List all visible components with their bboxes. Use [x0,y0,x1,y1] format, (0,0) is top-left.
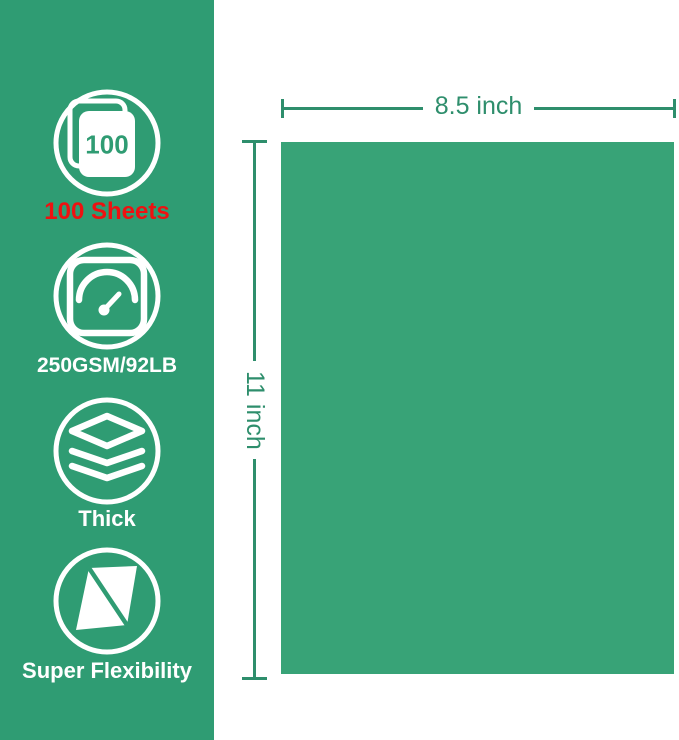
layers-icon [52,396,162,506]
gauge-icon [52,241,162,351]
dimension-line-bottom-segment [253,459,256,677]
sheets-stack-icon: 100 [52,88,162,198]
flex-sheet-icon [52,546,162,656]
feature-flexibility: Super Flexibility [0,546,214,684]
dimension-line-right-segment [534,107,673,110]
feature-sheet-count: 100 100 Sheets [0,88,214,225]
feature-banner: 100 100 Sheets 250GSM/92LB Thick [0,0,214,740]
feature-label-thickness: Thick [78,506,135,532]
feature-thickness: Thick [0,396,214,532]
height-dimension: 11 inch [242,140,267,680]
width-dimension: 8.5 inch [281,99,676,118]
height-dimension-label: 11 inch [240,371,269,450]
feature-label-weight: 250GSM/92LB [37,353,177,379]
feature-weight: 250GSM/92LB [0,241,214,379]
width-dimension-label: 8.5 inch [435,97,523,116]
dimension-tick-right [673,99,676,118]
product-infographic: 100 100 Sheets 250GSM/92LB Thick [0,0,679,740]
sheet-count-badge: 100 [85,130,128,160]
feature-label-flexibility: Super Flexibility [22,658,192,684]
dimension-tick-bottom [242,677,267,680]
paper-sheet [281,142,674,674]
dimension-line-top-segment [253,143,256,361]
dimension-line-left-segment [284,107,423,110]
feature-label-sheet-count: 100 Sheets [44,199,169,225]
